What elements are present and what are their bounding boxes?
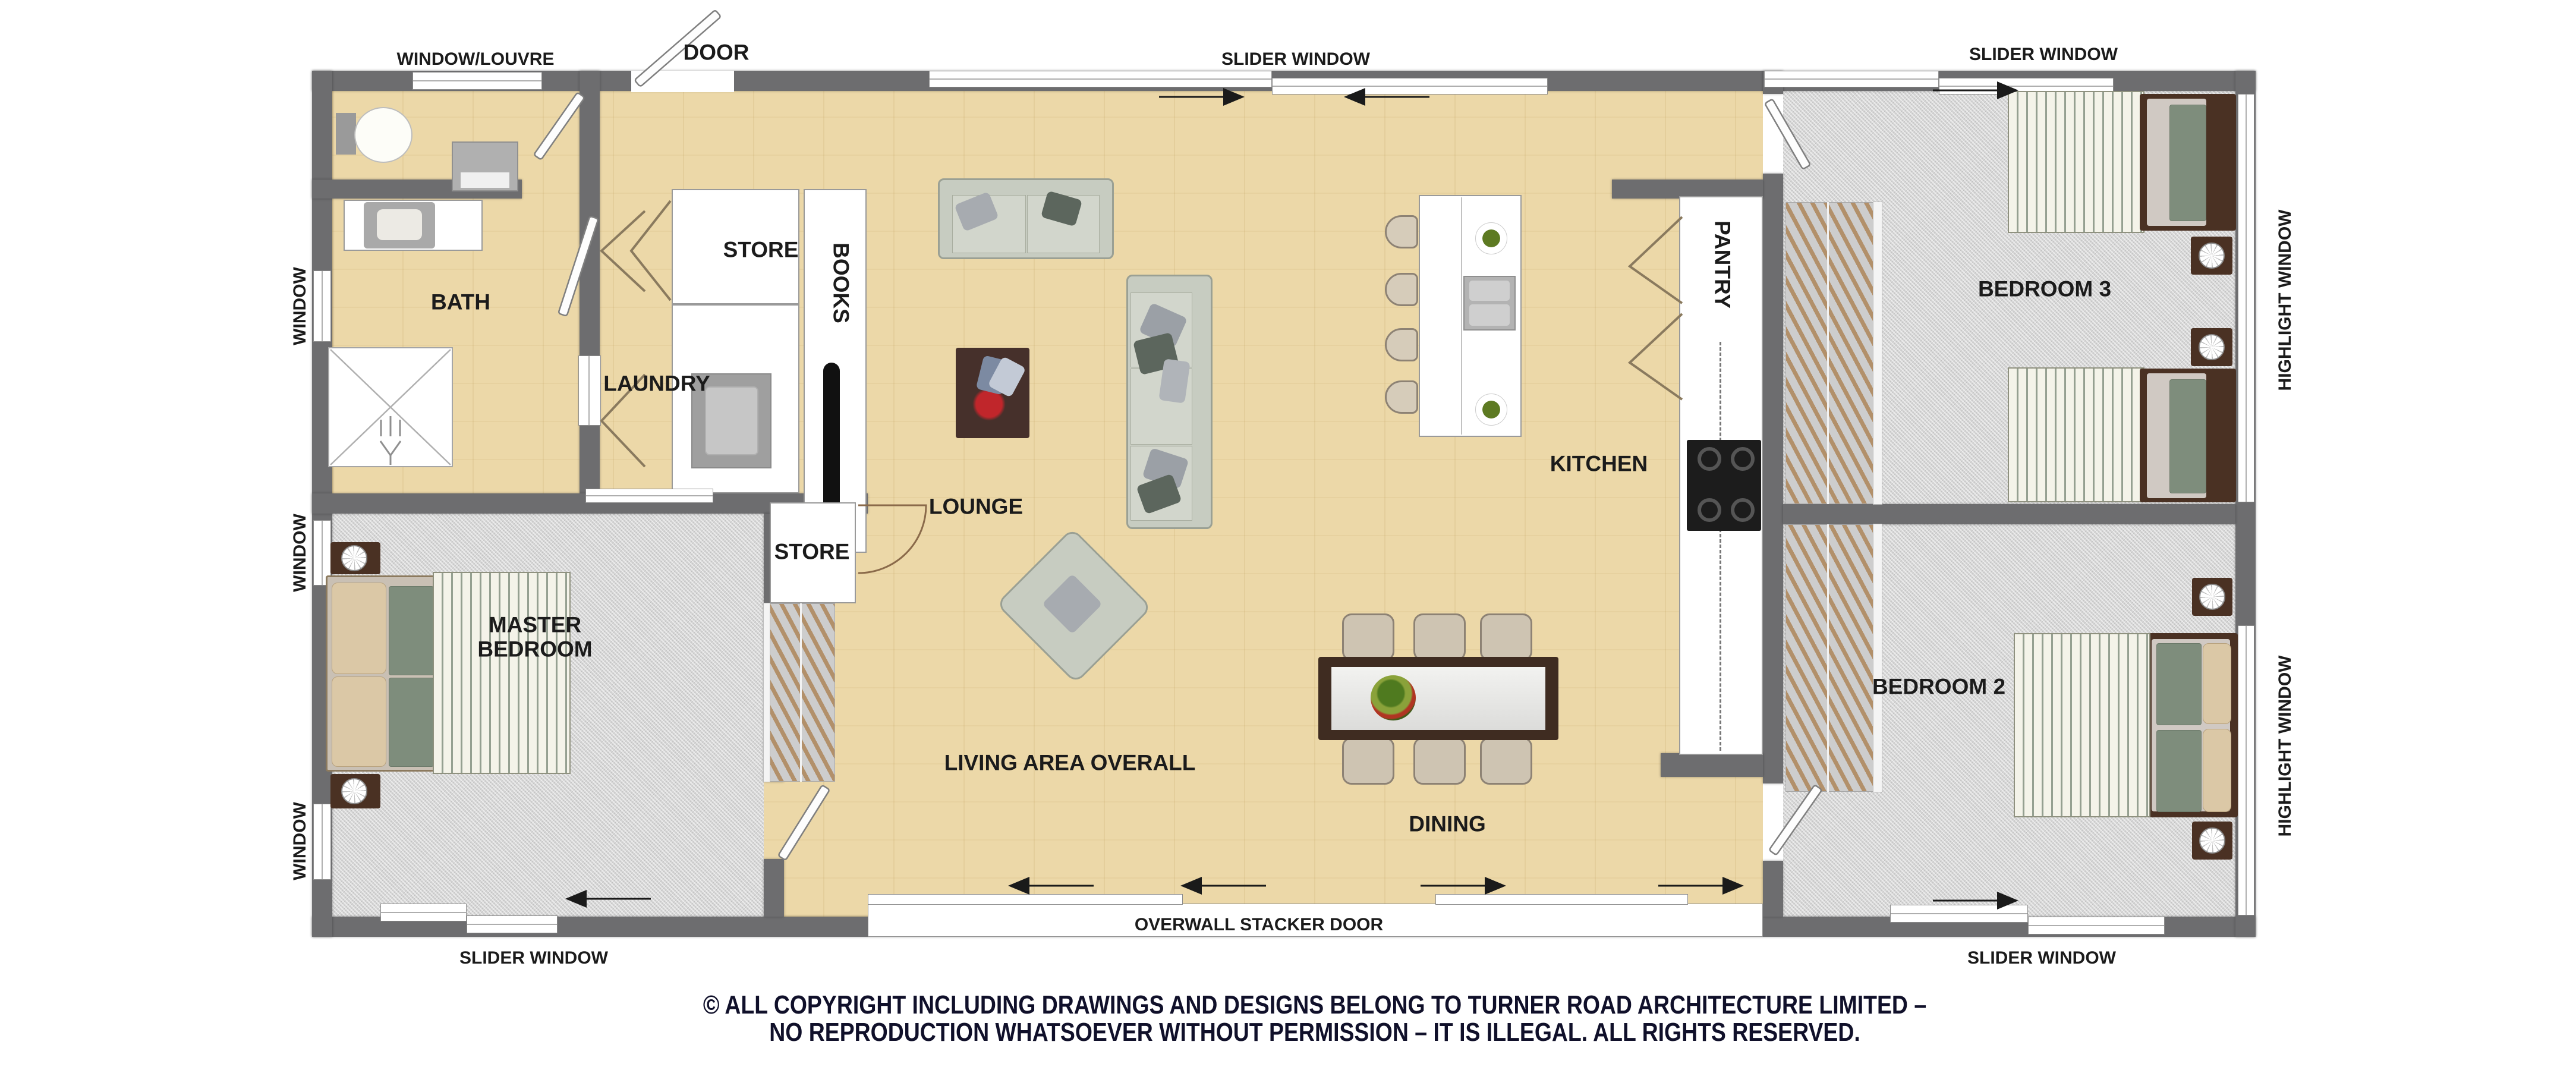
label-master-line2: BEDROOM xyxy=(477,637,592,662)
dining-table-top xyxy=(1331,667,1545,730)
label-highlight-bedroom3: HIGHLIGHT WINDOW xyxy=(2275,210,2295,391)
burner-icon xyxy=(1731,498,1755,522)
toilet-cistern xyxy=(336,113,356,155)
counter-dash-line xyxy=(1720,342,1721,751)
dining-chair xyxy=(1342,737,1394,785)
label-lounge: LOUNGE xyxy=(929,494,1023,518)
dining-chair xyxy=(1480,613,1532,661)
label-window-master2: WINDOW xyxy=(290,802,310,880)
bed2-blanket xyxy=(2156,643,2202,725)
window-master-2 xyxy=(313,804,331,880)
toilet-icon xyxy=(354,107,412,163)
label-window-master1: WINDOW xyxy=(290,514,310,592)
label-store-upper: STORE xyxy=(723,237,799,262)
slider-window-topright-sash xyxy=(1764,71,1939,87)
dining-chair xyxy=(1413,737,1466,785)
dining-chair xyxy=(1480,737,1532,785)
bed-pillow xyxy=(2203,729,2231,812)
bar-stool xyxy=(1385,215,1418,248)
wall-between-bedrooms xyxy=(1783,504,2235,524)
wall-counter-end xyxy=(1661,753,1763,777)
label-slider-bottomright: SLIDER WINDOW xyxy=(1967,948,2116,968)
window-bath xyxy=(313,270,331,342)
salad-bowl-icon xyxy=(1371,675,1416,720)
label-master-line1: MASTER xyxy=(489,613,581,637)
wardrobe-bedroom2 xyxy=(1785,524,1873,792)
burner-icon xyxy=(1731,447,1755,471)
label-kitchen: KITCHEN xyxy=(1550,451,1648,476)
stacker-door-panel xyxy=(1435,894,1688,905)
bed-blanket xyxy=(389,678,434,767)
label-window-bath: WINDOW xyxy=(290,267,310,345)
dining-chair xyxy=(1413,613,1466,661)
wardrobe-master xyxy=(770,603,835,782)
entry-door-opening xyxy=(631,71,734,92)
food-plate-icon xyxy=(1475,394,1507,426)
burner-icon xyxy=(1698,498,1721,522)
label-dining: DINING xyxy=(1409,811,1486,836)
label-window-louvre: WINDOW/LOUVRE xyxy=(397,49,555,70)
wardrobe-door xyxy=(1873,202,1882,504)
bar-stool xyxy=(1385,273,1418,306)
slider-window-master-sash xyxy=(380,904,467,921)
label-stacker-door: OVERWALL STACKER DOOR xyxy=(1135,915,1383,935)
wardrobe-rail xyxy=(1827,202,1829,504)
label-store-lower: STORE xyxy=(774,539,850,564)
floor-plan-page: BATH LAUNDRY STORE BOOKS STORE LOUNGE PA… xyxy=(0,0,2576,1070)
window-louvre-opening xyxy=(412,72,542,90)
dining-chair xyxy=(1342,613,1394,661)
bed-blanket xyxy=(389,586,434,675)
bath-slider-panel xyxy=(578,355,601,426)
bed2-duvet xyxy=(2014,633,2150,817)
label-master-bedroom: MASTER BEDROOM xyxy=(477,613,592,662)
label-bath: BATH xyxy=(431,289,490,314)
wardrobe-rail xyxy=(800,603,802,782)
label-pantry: PANTRY xyxy=(1710,221,1734,309)
wardrobe-rail xyxy=(1827,524,1829,792)
wardrobe-bedroom3 xyxy=(1785,202,1873,504)
label-highlight-bedroom2: HIGHLIGHT WINDOW xyxy=(2275,656,2295,837)
bed-pillow xyxy=(332,676,386,767)
lamp-icon xyxy=(341,545,367,571)
master-bed-duvet xyxy=(433,572,571,774)
bed3a-blanket xyxy=(2169,105,2206,221)
label-living: LIVING AREA OVERALL xyxy=(944,750,1196,775)
bar-stool xyxy=(1385,380,1418,414)
bed3a-duvet xyxy=(2008,91,2144,233)
lamp-icon xyxy=(2199,584,2225,610)
bed2-blanket xyxy=(2156,730,2202,812)
label-bedroom2: BEDROOM 2 xyxy=(1872,674,2005,698)
copyright-line1: © ALL COPYRIGHT INCLUDING DRAWINGS AND D… xyxy=(703,990,1926,1020)
highlight-window-bedroom2 xyxy=(2238,625,2254,915)
laundry-slider-panel xyxy=(585,489,713,503)
island-divider xyxy=(1461,197,1462,435)
label-slider-topright: SLIDER WINDOW xyxy=(1969,45,2118,65)
copyright-line2: NO REPRODUCTION WHATSOEVER WITHOUT PERMI… xyxy=(769,1018,1860,1047)
label-door: DOOR xyxy=(684,40,750,64)
shower-icon xyxy=(328,347,453,467)
slider-window-top-sash xyxy=(929,71,1272,87)
bar-stool xyxy=(1385,328,1418,361)
wall-bath-right xyxy=(580,71,600,493)
sink-basin xyxy=(1469,281,1510,301)
food-plate-icon xyxy=(1475,222,1507,254)
burner-icon xyxy=(1698,447,1721,471)
slider-window-bedroom2-sash xyxy=(1890,905,2028,923)
label-slider-top: SLIDER WINDOW xyxy=(1221,49,1370,70)
bath-sink-basin xyxy=(377,209,422,240)
wall-bedrooms-left-c xyxy=(1763,861,1783,917)
highlight-window-bedroom3 xyxy=(2238,94,2254,502)
bed3b-duvet xyxy=(2008,367,2144,502)
bed-pillow xyxy=(332,583,386,674)
slider-window-top-sash xyxy=(1272,78,1548,95)
lamp-icon xyxy=(341,778,367,804)
sink-basin xyxy=(1469,304,1510,326)
wall-master-right-lower xyxy=(764,859,784,917)
wall-bedrooms-left-b xyxy=(1763,174,1783,783)
lamp-icon xyxy=(2199,243,2225,269)
wardrobe-door xyxy=(764,603,770,782)
label-books: BOOKS xyxy=(829,243,853,323)
lamp-icon xyxy=(2199,827,2225,854)
wc-vanity-front xyxy=(461,172,509,188)
wardrobe-door xyxy=(1873,524,1882,792)
bed-pillow xyxy=(2203,643,2231,724)
label-slider-bottomleft: SLIDER WINDOW xyxy=(459,948,608,968)
label-laundry: LAUNDRY xyxy=(603,371,710,395)
slider-window-bedroom2-sash xyxy=(2028,917,2165,934)
label-bedroom3: BEDROOM 3 xyxy=(1978,276,2111,301)
lamp-icon xyxy=(2199,334,2225,360)
washing-machine-door xyxy=(705,386,758,455)
bed3b-blanket xyxy=(2169,379,2206,493)
slider-window-master-sash xyxy=(467,915,558,933)
stacker-door-panel xyxy=(868,894,1183,905)
